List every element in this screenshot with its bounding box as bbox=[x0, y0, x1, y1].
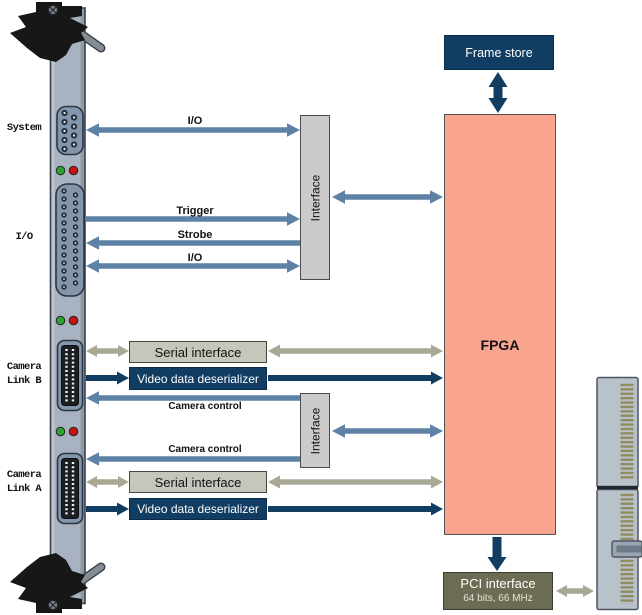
db9-system-connector-icon bbox=[57, 107, 83, 155]
video-deserializer-a-label: Video data deserializer bbox=[137, 502, 259, 516]
pci-interface-subtitle: 64 bits, 66 MHz bbox=[463, 591, 532, 606]
signal-label-trigger: Trigger bbox=[120, 205, 270, 217]
arrow-serial-b-fpga bbox=[268, 345, 443, 358]
signal-label-camera-control-a: Camera control bbox=[130, 444, 280, 455]
frame-grabber-block-diagram: Frame store FPGA Interface Interface Ser… bbox=[0, 0, 642, 615]
arrow-serial-a-panel bbox=[86, 476, 129, 488]
arrow-interface-top-fpga bbox=[332, 190, 443, 204]
pci-interface-title: PCI interface bbox=[460, 576, 535, 591]
arrow-serial-a-fpga bbox=[268, 476, 443, 489]
db25-io-connector-icon bbox=[56, 184, 84, 296]
panel-label-system: System bbox=[0, 122, 48, 136]
signal-label-io-secondary: I/O bbox=[120, 252, 270, 264]
camera-link-b-connector-icon bbox=[58, 341, 83, 411]
fpga-block: FPGA bbox=[444, 114, 556, 535]
arrow-serial-b-panel bbox=[86, 345, 129, 357]
signal-label-camera-control-b: Camera control bbox=[130, 401, 280, 412]
pci-edge-connector-icon bbox=[597, 378, 642, 610]
serial-interface-b-block: Serial interface bbox=[129, 341, 267, 363]
video-deserializer-b-block: Video data deserializer bbox=[129, 367, 267, 390]
arrow-video-a-fpga bbox=[268, 503, 443, 516]
panel-label-io: I/O bbox=[0, 231, 48, 245]
ejector-handle-top-icon bbox=[10, 2, 101, 62]
arrow-fpga-pci bbox=[488, 537, 507, 571]
arrow-frame-store-fpga bbox=[489, 72, 508, 113]
video-deserializer-a-block: Video data deserializer bbox=[129, 498, 267, 520]
interface-bottom-label: Interface bbox=[308, 407, 322, 454]
arrow-pci-edge-connector bbox=[556, 585, 594, 597]
interface-top-block: Interface bbox=[300, 115, 330, 280]
panel-label-camera-link-a: Camera Link A bbox=[0, 469, 48, 496]
frame-store-label: Frame store bbox=[465, 46, 532, 60]
panel-label-camera-link-b: Camera Link B bbox=[0, 361, 48, 388]
interface-bottom-block: Interface bbox=[300, 393, 330, 468]
video-deserializer-b-label: Video data deserializer bbox=[137, 372, 259, 386]
arrow-video-b-panel bbox=[86, 372, 129, 385]
signal-label-io-system: I/O bbox=[120, 115, 270, 127]
fpga-label: FPGA bbox=[481, 337, 520, 353]
camera-link-a-connector-icon bbox=[58, 454, 83, 524]
frame-store-block: Frame store bbox=[444, 35, 554, 70]
pci-interface-block: PCI interface 64 bits, 66 MHz bbox=[443, 572, 553, 610]
ejector-handle-bottom-icon bbox=[10, 553, 101, 613]
arrow-interface-bottom-fpga bbox=[332, 424, 443, 438]
serial-interface-b-label: Serial interface bbox=[155, 345, 242, 360]
serial-interface-a-block: Serial interface bbox=[129, 471, 267, 493]
signal-label-strobe: Strobe bbox=[120, 229, 270, 241]
interface-top-label: Interface bbox=[308, 174, 322, 221]
serial-interface-a-label: Serial interface bbox=[155, 475, 242, 490]
arrow-video-a-panel bbox=[86, 503, 129, 516]
arrow-video-b-fpga bbox=[268, 372, 443, 385]
